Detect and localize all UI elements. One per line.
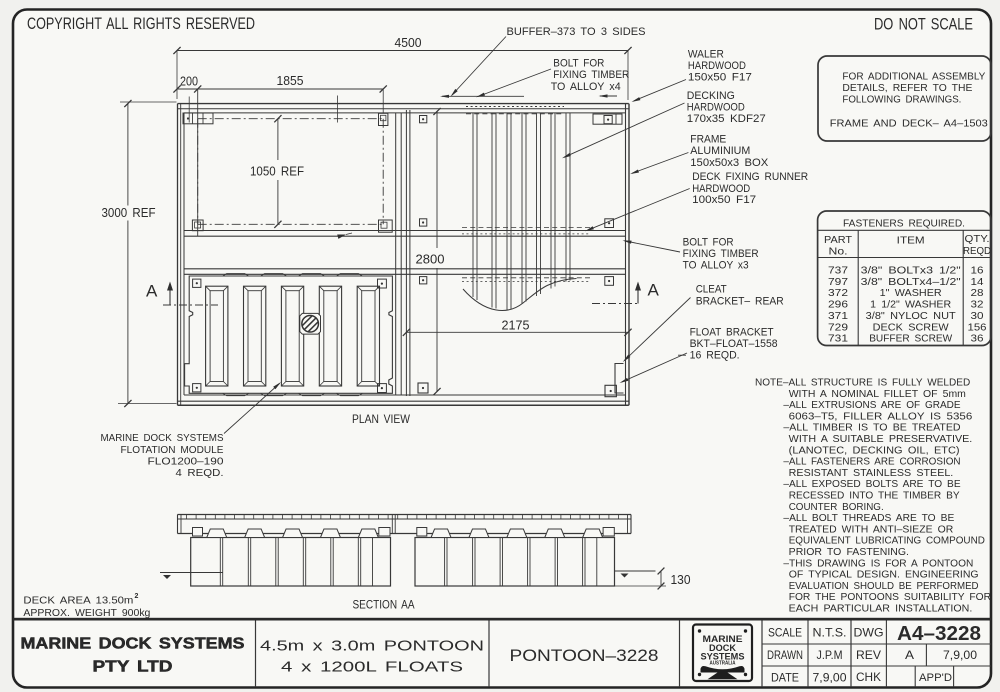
svg-text:–ALL EXTRUSIONS ARE OF GRADE: –ALL EXTRUSIONS ARE OF GRADE: [783, 399, 960, 411]
svg-text:MARINE DOCK SYSTEMS: MARINE DOCK SYSTEMS: [21, 636, 245, 653]
svg-text:APPROX. WEIGHT 900kg: APPROX. WEIGHT 900kg: [23, 607, 150, 619]
svg-text:4 REQD.: 4 REQD.: [176, 467, 224, 479]
svg-text:No.: No.: [829, 246, 848, 258]
svg-text:FLOTATION MODULE: FLOTATION MODULE: [121, 444, 224, 456]
svg-text:–ALL FASTENERS ARE CORROSION: –ALL FASTENERS ARE CORROSION: [783, 456, 960, 468]
svg-text:1855: 1855: [277, 74, 304, 88]
svg-text:371: 371: [828, 310, 848, 322]
svg-text:FLO1200–190: FLO1200–190: [148, 456, 224, 468]
svg-text:200: 200: [180, 75, 198, 89]
svg-text:DO NOT SCALE: DO NOT SCALE: [874, 15, 973, 34]
svg-text:A: A: [905, 648, 914, 662]
svg-text:DATE: DATE: [771, 671, 799, 685]
svg-text:A4–3228: A4–3228: [897, 623, 981, 645]
svg-text:1" WASHER: 1" WASHER: [880, 287, 942, 299]
svg-text:36: 36: [971, 333, 984, 345]
svg-text:RESISTANT STAINLESS STEEL.: RESISTANT STAINLESS STEEL.: [789, 467, 954, 479]
svg-text:FLOAT BRACKET: FLOAT BRACKET: [690, 327, 774, 339]
svg-text:WALER: WALER: [688, 49, 724, 61]
svg-text:N.T.S.: N.T.S.: [813, 626, 847, 640]
svg-text:150x50x3 BOX: 150x50x3 BOX: [690, 157, 769, 169]
svg-text:3000 REF: 3000 REF: [102, 206, 156, 220]
svg-text:30: 30: [971, 310, 984, 322]
svg-text:DETAILS, REFER TO THE: DETAILS, REFER TO THE: [842, 82, 972, 94]
svg-text:PTY LTD: PTY LTD: [93, 659, 173, 676]
svg-text:FOR THE PONTOONS SUITABILITY F: FOR THE PONTOONS SUITABILITY FOR: [789, 591, 992, 603]
svg-text:14: 14: [971, 276, 984, 288]
svg-text:RECESSED INTO THE TIMBER BY: RECESSED INTO THE TIMBER BY: [789, 490, 960, 502]
svg-text:HARDWOOD: HARDWOOD: [687, 102, 745, 114]
svg-text:4500: 4500: [395, 36, 422, 50]
svg-text:MARINE DOCK SYSTEMS: MARINE DOCK SYSTEMS: [101, 432, 224, 444]
svg-text:731: 731: [828, 333, 848, 345]
svg-text:BOLT FOR: BOLT FOR: [683, 237, 734, 249]
svg-text:16: 16: [971, 265, 984, 277]
svg-text:DECK FIXING RUNNER: DECK FIXING RUNNER: [692, 171, 808, 183]
svg-text:1 1/2" WASHER: 1 1/2" WASHER: [870, 299, 951, 311]
svg-text:J.P.M: J.P.M: [817, 648, 843, 662]
svg-text:EQUIVALENT LUBRICATING COMPOUN: EQUIVALENT LUBRICATING COMPOUND: [789, 535, 986, 547]
svg-text:296: 296: [828, 299, 848, 311]
svg-text:WITH A NOMINAL FILLET OF 5mm: WITH A NOMINAL FILLET OF 5mm: [789, 388, 966, 400]
svg-text:16 REQD.: 16 REQD.: [690, 350, 740, 362]
svg-text:REV: REV: [856, 648, 881, 662]
svg-text:PART: PART: [824, 234, 853, 246]
svg-text:150x50 F17: 150x50 F17: [688, 71, 752, 83]
svg-text:PLAN VIEW: PLAN VIEW: [352, 412, 411, 426]
svg-text:EVALUATION SHOULD BE PERFORMED: EVALUATION SHOULD BE PERFORMED: [789, 580, 979, 592]
svg-text:1050 REF: 1050 REF: [250, 165, 304, 179]
svg-text:QTY.: QTY.: [965, 233, 990, 245]
svg-text:CHK: CHK: [856, 670, 881, 684]
svg-text:COUNTER BORING.: COUNTER BORING.: [789, 501, 884, 513]
svg-text:BUFFER–373 TO 3 SIDES: BUFFER–373 TO 3 SIDES: [507, 26, 646, 38]
svg-text:FOLLOWING DRAWINGS.: FOLLOWING DRAWINGS.: [842, 93, 961, 105]
svg-text:WITH A SUITABLE PRESERVATIVE.: WITH A SUITABLE PRESERVATIVE.: [789, 433, 973, 445]
svg-text:156: 156: [968, 321, 987, 333]
svg-text:FRAME AND DECK– A4–1503: FRAME AND DECK– A4–1503: [830, 117, 988, 129]
svg-text:729: 729: [828, 321, 848, 333]
svg-text:28: 28: [971, 287, 984, 299]
svg-text:PONTOON–3228: PONTOON–3228: [510, 647, 659, 665]
svg-text:FIXING TIMBER: FIXING TIMBER: [683, 248, 759, 260]
svg-text:372: 372: [828, 287, 848, 299]
svg-text:32: 32: [971, 299, 984, 311]
svg-text:SECTION AA: SECTION AA: [353, 598, 415, 612]
svg-text:2: 2: [135, 593, 139, 600]
svg-text:–ALL EXPOSED BOLTS ARE TO BE: –ALL EXPOSED BOLTS ARE TO BE: [783, 478, 960, 490]
svg-text:REQD: REQD: [963, 245, 991, 257]
svg-text:OF TYPICAL DESIGN. ENGINEERING: OF TYPICAL DESIGN. ENGINEERING: [789, 569, 979, 581]
svg-text:4 x 1200L FLOATS: 4 x 1200L FLOATS: [281, 659, 463, 676]
svg-text:737: 737: [828, 265, 848, 277]
svg-text:PRIOR TO FASTENING.: PRIOR TO FASTENING.: [789, 546, 909, 558]
svg-text:DECKING: DECKING: [687, 90, 735, 102]
svg-text:EACH PARTICULAR INSTALLATION.: EACH PARTICULAR INSTALLATION.: [789, 603, 973, 615]
svg-text:FOR ADDITIONAL ASSEMBLY: FOR ADDITIONAL ASSEMBLY: [842, 70, 985, 82]
svg-text:COPYRIGHT ALL RIGHTS RESERVED: COPYRIGHT ALL RIGHTS RESERVED: [27, 14, 255, 33]
svg-text:DECK AREA 13.50m: DECK AREA 13.50m: [23, 594, 133, 606]
svg-text:7,9,00: 7,9,00: [813, 671, 847, 685]
svg-text:7,9,00: 7,9,00: [943, 648, 977, 662]
svg-text:FIXING TIMBER: FIXING TIMBER: [553, 69, 629, 81]
svg-text:AUSTRALIA: AUSTRALIA: [710, 661, 736, 667]
svg-text:ITEM: ITEM: [897, 235, 925, 247]
svg-text:797: 797: [828, 276, 848, 288]
svg-text:DWG: DWG: [854, 626, 884, 640]
svg-text:2175: 2175: [502, 319, 530, 333]
svg-text:–ALL BOLT THREADS ARE TO BE: –ALL BOLT THREADS ARE TO BE: [783, 512, 954, 524]
svg-text:BOLT FOR: BOLT FOR: [553, 58, 604, 70]
svg-text:–ALL TIMBER IS TO BE TREATED: –ALL TIMBER IS TO BE TREATED: [783, 422, 961, 434]
svg-text:HARDWOOD: HARDWOOD: [692, 183, 750, 195]
svg-text:130: 130: [671, 573, 691, 587]
svg-text:(LANOTEC, DECKING OIL, ETC): (LANOTEC, DECKING OIL, ETC): [789, 444, 960, 456]
svg-text:FASTENERS REQUIRED.: FASTENERS REQUIRED.: [843, 218, 965, 230]
svg-text:170x35 KDF27: 170x35 KDF27: [687, 113, 766, 125]
svg-text:4.5m x 3.0m PONTOON: 4.5m x 3.0m PONTOON: [260, 638, 484, 655]
svg-text:APP'D: APP'D: [919, 672, 952, 684]
svg-text:100x50 F17: 100x50 F17: [692, 194, 756, 206]
svg-text:TO ALLOY x3: TO ALLOY x3: [683, 260, 749, 272]
svg-text:6063–T5, FILLER ALLOY IS 5356: 6063–T5, FILLER ALLOY IS 5356: [789, 410, 973, 422]
svg-text:FRAME: FRAME: [690, 134, 726, 146]
svg-text:SCALE: SCALE: [768, 626, 802, 640]
svg-text:DRAWN: DRAWN: [767, 648, 803, 662]
svg-text:TREATED WITH ANTI–SIEZE OR: TREATED WITH ANTI–SIEZE OR: [789, 523, 954, 535]
svg-text:–THIS DRAWING IS FOR A PONTOON: –THIS DRAWING IS FOR A PONTOON: [783, 557, 973, 569]
svg-text:A: A: [146, 282, 158, 301]
svg-text:BRACKET– REAR: BRACKET– REAR: [696, 296, 784, 308]
svg-text:3/8" BOLTx3 1/2": 3/8" BOLTx3 1/2": [861, 265, 961, 277]
svg-text:BKT–FLOAT–1558: BKT–FLOAT–1558: [690, 338, 778, 350]
svg-text:CLEAT: CLEAT: [696, 284, 727, 296]
svg-text:3/8" NYLOC NUT: 3/8" NYLOC NUT: [866, 310, 957, 322]
svg-text:DECK SCREW: DECK SCREW: [873, 321, 949, 333]
svg-text:ALUMINIUM: ALUMINIUM: [690, 145, 750, 157]
svg-text:HARDWOOD: HARDWOOD: [688, 60, 746, 72]
svg-text:TO ALLOY x4: TO ALLOY x4: [551, 81, 621, 93]
svg-text:2800: 2800: [416, 253, 445, 267]
svg-text:BUFFER SCREW: BUFFER SCREW: [869, 333, 952, 345]
svg-text:A: A: [648, 281, 660, 300]
svg-text:NOTE–ALL STRUCTURE IS FULLY WE: NOTE–ALL STRUCTURE IS FULLY WELDED: [755, 377, 971, 389]
svg-text:3/8" BOLTx4–1/2": 3/8" BOLTx4–1/2": [861, 276, 961, 288]
